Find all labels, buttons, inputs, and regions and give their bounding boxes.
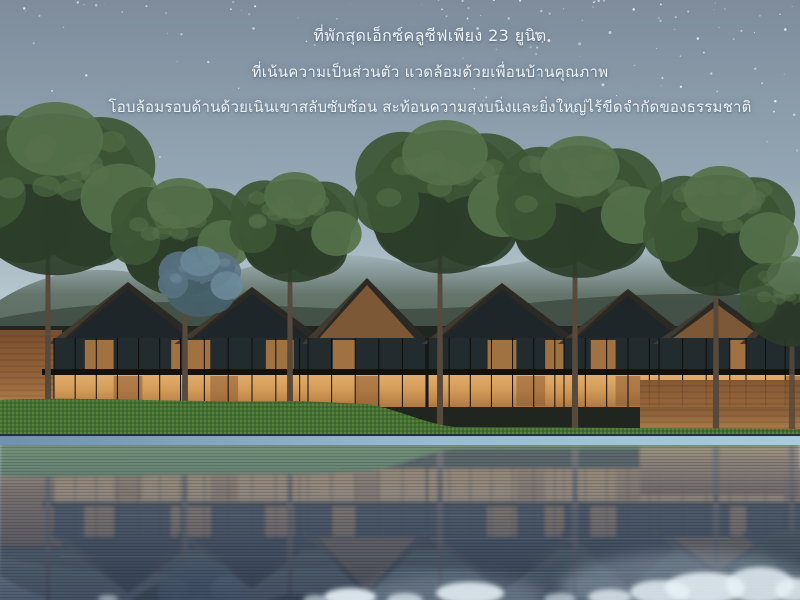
landscape-scene bbox=[0, 0, 800, 446]
wood-wall-right bbox=[640, 380, 800, 432]
architectural-rendering bbox=[0, 0, 800, 600]
waterline-stripe bbox=[0, 436, 800, 445]
property-ad-poster: ที่พักสุดเอ็กซ์คลูซีฟเพียง 23 ยูนิต ที่เ… bbox=[0, 0, 800, 600]
pool-water bbox=[0, 430, 800, 600]
